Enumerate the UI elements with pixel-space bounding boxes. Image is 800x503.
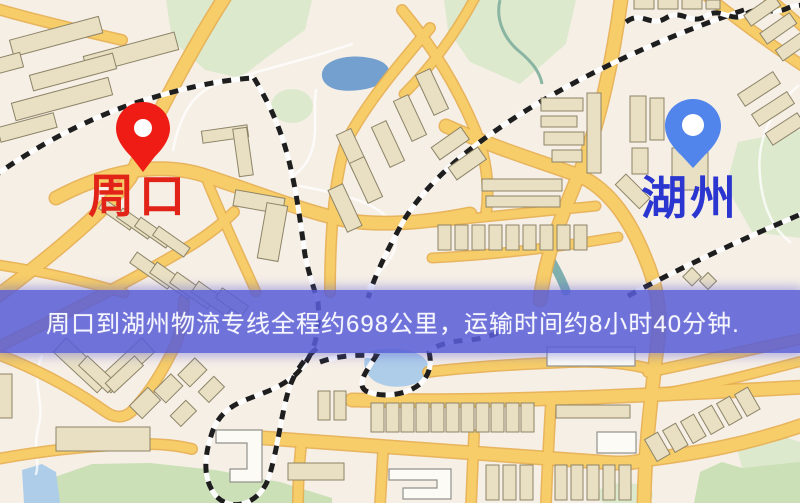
route-info-text: 周口到湖州物流专线全程约698公里，运输时间约8小时40分钟. (0, 304, 740, 339)
destination-city-label: 湖州 (641, 176, 739, 222)
route-info-banner: 周口到湖州物流专线全程约698公里，运输时间约8小时40分钟. (0, 290, 800, 353)
map-canvas: 周口 湖州 周口到湖州物流专线全程约698公里，运输时间约8小时40分钟. (0, 0, 800, 503)
origin-city-label: 周口 (88, 173, 190, 219)
map-image (0, 0, 800, 503)
